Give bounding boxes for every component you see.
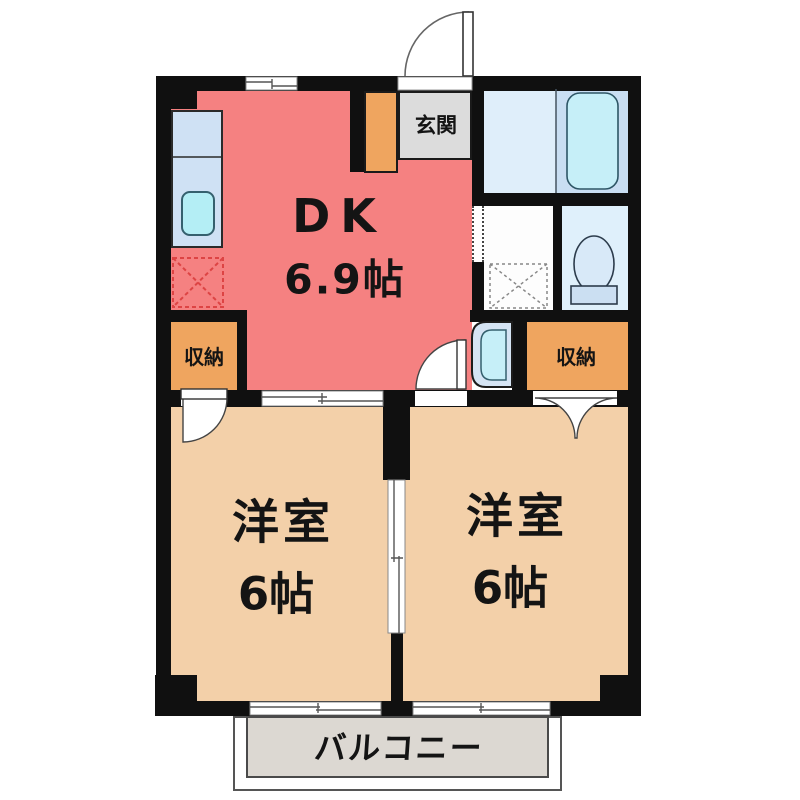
storage-left-door [181, 389, 227, 442]
opening-sliding-center [388, 480, 405, 633]
label-storage-right: 収納 [556, 347, 596, 367]
bathtub [567, 93, 618, 189]
label-genkan: 玄関 [415, 116, 457, 137]
label-dk-name: DK [282, 193, 386, 239]
label-western-left-name: 洋室 [228, 500, 334, 547]
entrance-door [405, 12, 473, 76]
washbasin [472, 322, 512, 387]
washing-machine-pan [490, 264, 547, 308]
entrance-opening [398, 77, 472, 90]
opening-dk-door [415, 391, 467, 406]
refrigerator-space [173, 258, 223, 307]
label-storage-left: 収納 [184, 347, 224, 367]
label-western-right-name: 洋室 [462, 494, 568, 541]
fixtures-overlay [0, 0, 800, 800]
floorplan-canvas: 玄関 DK 6.9帖 収納 収納 洋室 6帖 洋室 6帖 バルコニー [0, 0, 800, 800]
label-dk-size: 6.9帖 [284, 260, 406, 301]
toilet [571, 236, 617, 304]
label-balcony: バルコニー [313, 732, 485, 764]
label-western-right-size: 6帖 [472, 566, 548, 611]
window-bottom-left [250, 702, 381, 715]
label-western-left-size: 6帖 [238, 572, 314, 617]
dk-room-door [416, 340, 466, 389]
entrance-door-leaf [463, 12, 473, 76]
